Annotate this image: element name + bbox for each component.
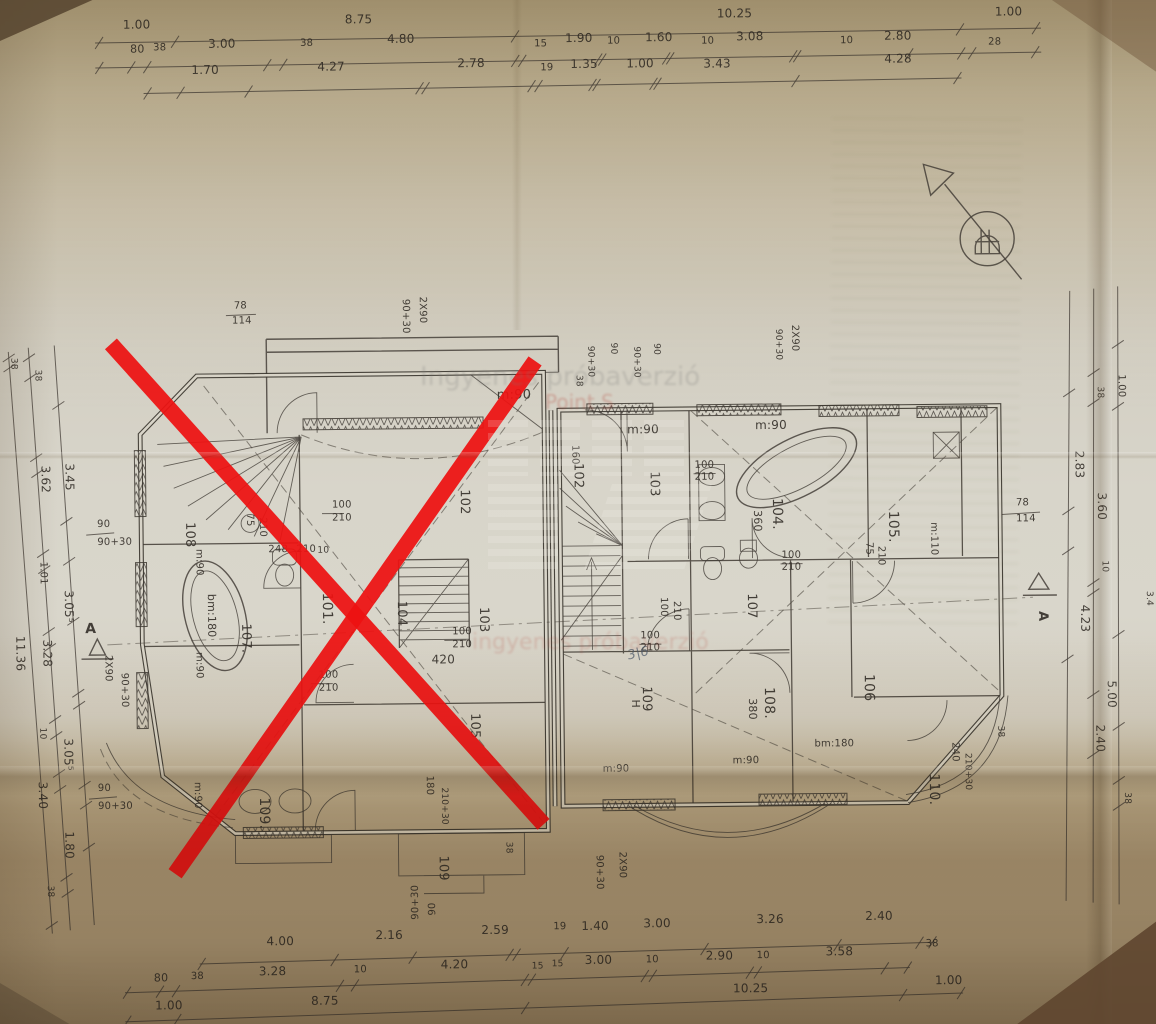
plan-left-label: 210 xyxy=(452,639,472,650)
dim-bottom-label: 3.28 xyxy=(259,964,287,978)
dim-right-label: 38 xyxy=(1122,792,1132,804)
plan-left-label: 90+30 xyxy=(400,299,411,334)
plan-left-label: 100 xyxy=(452,626,472,637)
dim-right-label: 5.00 xyxy=(1105,680,1119,708)
dim-left-label: 1.80 xyxy=(62,831,76,859)
plan-left-label: 103 xyxy=(476,607,491,633)
dim-bottom-label: 80 xyxy=(154,971,169,984)
plan-right-label: 90+30 xyxy=(585,346,595,378)
dim-top-label: 15 xyxy=(534,38,547,49)
plan-right-label: m:90 xyxy=(733,755,760,766)
dim-left-label: 3.62 xyxy=(38,466,52,494)
plan-right-label: 210 xyxy=(671,601,682,621)
dim-bottom-label: 90 xyxy=(427,902,438,915)
dim-left-label: 90 xyxy=(98,783,111,794)
dim-left-label: 10 xyxy=(37,728,47,740)
dim-left-label: 3.45 xyxy=(62,463,76,491)
floorplan-drawing: 1.008.7510.251.0080383.00384.80151.90101… xyxy=(0,0,1156,1024)
plan-right-label: H xyxy=(629,699,642,708)
dim-top-label: 1.90 xyxy=(565,31,593,45)
plan-right-label: 100 xyxy=(640,630,660,641)
plan-right-label: 106 xyxy=(861,674,877,701)
dim-left-label: 90+30 xyxy=(119,673,130,708)
dim-bottom-label: 15 xyxy=(532,961,544,971)
dim-right-label: 3.60 xyxy=(1095,492,1109,520)
dim-left-label: 38 xyxy=(8,358,18,370)
plan-right-label: 100 xyxy=(781,550,801,561)
dim-top-label: 10.25 xyxy=(717,6,753,20)
dim-left-label: 90+30 xyxy=(97,537,132,548)
dim-bottom-label: 4.00 xyxy=(266,934,294,948)
plan-left-label: 75 xyxy=(244,513,255,526)
plan-left-label: 109. xyxy=(256,797,272,829)
plan-left-label: m:90 xyxy=(193,652,204,679)
plan-left-label: 210 xyxy=(332,512,352,523)
dim-top-label: 8.75 xyxy=(345,12,373,26)
dimension-chains xyxy=(0,21,1131,1024)
plan-left-label: m:90 xyxy=(193,549,204,576)
plan-left-label: bm:180 xyxy=(205,594,218,638)
dim-top-label: 1.35 xyxy=(570,57,598,71)
plan-left-label: 78 xyxy=(234,300,247,311)
plan-right-label: 102 xyxy=(570,463,585,489)
dim-right-label: 1.00 xyxy=(1116,374,1127,397)
plan-right-label: 38 xyxy=(574,375,584,387)
plan-right-label: 210 xyxy=(782,562,802,573)
dim-right-label: 2.83 xyxy=(1072,451,1086,479)
dim-bottom-label: 3.58 xyxy=(826,944,854,958)
dim-bottom-label: 2.90 xyxy=(706,948,734,962)
plan-right-label: m:90 xyxy=(755,418,787,432)
north-arrow-icon xyxy=(923,163,1021,280)
plan-right-label: 75 xyxy=(863,542,874,555)
dim-left-label: 38 xyxy=(45,885,55,897)
dim-top-label: 1.70 xyxy=(191,63,219,77)
dim-right-label: 38 xyxy=(1095,386,1105,398)
plan-right-label: 240 xyxy=(949,742,960,762)
dim-right-label: 2.40 xyxy=(1093,724,1107,752)
plan-left-label: 210 xyxy=(319,683,339,694)
dim-bottom-label: 3.00 xyxy=(643,916,671,930)
dim-left-label: 3.05⁵ xyxy=(61,738,75,771)
dim-left-label: 3.40 xyxy=(36,782,50,810)
dim-bottom-label: 10 xyxy=(646,954,659,965)
dim-left-label: 90 xyxy=(97,519,110,530)
plan-left-label: 210+30 xyxy=(439,787,449,825)
section-marker-label: A xyxy=(1035,611,1050,621)
dim-right-label: 78 xyxy=(1016,497,1029,508)
dim-top-label: 4.80 xyxy=(387,32,415,46)
dim-top-label: 19 xyxy=(540,62,553,73)
dim-bottom-label: 10 xyxy=(354,964,367,975)
dim-bottom-label: 10.25 xyxy=(733,981,769,995)
dim-bottom-label: 3.00 xyxy=(585,953,613,967)
dim-left-label: 3.05⁵ xyxy=(62,590,76,623)
handwritten-note-label: 3|6 xyxy=(626,644,650,663)
plan-right-label: 90+30 xyxy=(631,346,641,378)
dim-bottom-label: 2.59 xyxy=(481,923,509,937)
plan-right-label: 380 xyxy=(746,698,759,720)
plan-right-label: 38 xyxy=(995,726,1005,738)
dim-top-label: 10 xyxy=(607,36,620,47)
dim-top-label: 38 xyxy=(153,42,166,53)
plan-right-label: bm:180 xyxy=(814,738,854,749)
plan-left-label: 2X90 xyxy=(617,851,628,878)
plan-left-label: 180 xyxy=(424,776,435,796)
plan-right-label: 100 xyxy=(694,460,714,471)
plan-right-label: 2X90 xyxy=(789,325,800,352)
plan-left-label: 100 xyxy=(332,499,352,510)
dim-bottom-label: 1.00 xyxy=(935,973,963,987)
dim-right-label: 114 xyxy=(1016,513,1036,524)
plan-right-label: m:90 xyxy=(603,763,630,774)
dim-right-label: 3.4 xyxy=(1144,591,1154,606)
plan-left-label: 109 xyxy=(436,855,451,881)
plan-right-label: m:90 xyxy=(627,422,659,436)
dim-top-label: 1.00 xyxy=(995,4,1023,18)
dim-left-label: 1.01 xyxy=(37,562,48,585)
plan-right-label: 210 xyxy=(875,546,886,566)
plan-right-label: 210+30 xyxy=(963,753,973,791)
plan-right-label: 105. xyxy=(885,511,901,543)
dim-top-label: 3.00 xyxy=(208,37,236,51)
plan-left-label: 108 xyxy=(182,522,197,548)
dim-top-label: 10 xyxy=(701,36,714,47)
dim-bottom-label: 8.75 xyxy=(311,994,339,1008)
dim-bottom-label: 2.40 xyxy=(865,909,893,923)
dim-left-label: 2X90 xyxy=(102,655,113,682)
dim-top-label: 80 xyxy=(130,43,145,56)
plan-right-label: 108. xyxy=(761,687,777,719)
dim-top-label: 4.28 xyxy=(884,51,912,65)
plan-right-label: 90+30 xyxy=(773,329,783,361)
dim-bottom-label: 2.16 xyxy=(375,928,403,942)
plan-left-label: m:90 xyxy=(192,782,203,809)
dim-bottom-label: 15 xyxy=(552,959,564,969)
plan-left-label: 102 xyxy=(457,489,472,515)
section-marker-label: A xyxy=(85,621,96,637)
dim-bottom-label: 4.20 xyxy=(441,957,469,971)
dim-top-label: 1.00 xyxy=(626,56,654,70)
plan-left-label: 420 xyxy=(431,652,455,666)
plan-left-label: 107. xyxy=(238,623,253,653)
plan-right-label: 103 xyxy=(647,471,662,497)
dim-top-label: 3.43 xyxy=(703,56,731,70)
dim-bottom-label: 1.00 xyxy=(155,998,183,1012)
dim-top-label: 1.00 xyxy=(123,17,151,31)
photographed-floorplan: 1.008.7510.251.0080383.00384.80151.90101… xyxy=(0,0,1156,1024)
plan-right-label: 160 xyxy=(569,445,580,465)
dim-bottom-label: 1.40 xyxy=(581,919,609,933)
dim-top-label: 2.80 xyxy=(884,28,912,42)
dim-top-label: 3.08 xyxy=(736,29,764,43)
dim-top-label: 10 xyxy=(840,35,853,46)
dim-bottom-label: 3.26 xyxy=(756,912,784,926)
plan-right-label: 90 xyxy=(608,343,618,355)
plan-right-label: 360 xyxy=(751,510,764,532)
plan-left-label: 114 xyxy=(232,315,252,326)
dim-right-label: 10 xyxy=(1100,560,1110,572)
dim-bottom-label: 38 xyxy=(191,971,204,982)
plan-right-label: 210 xyxy=(695,472,715,483)
dim-bottom-label: 38 xyxy=(925,938,938,949)
dim-left-label: 90+30 xyxy=(98,801,133,812)
plan-right-label: 104. xyxy=(769,498,785,530)
dim-bottom-label: 90+30 xyxy=(410,885,421,920)
dim-left-label: 11.36 xyxy=(13,636,27,672)
dim-left-label: 38 xyxy=(32,370,42,382)
plan-left-label: 2X90 xyxy=(417,297,428,324)
plan-right-label: 107 xyxy=(744,593,759,619)
dim-top-label: 38 xyxy=(300,38,313,49)
plan-left-label: 10 xyxy=(317,546,329,556)
dim-top-label: 1.60 xyxy=(645,30,673,44)
plan-right-label: 110. xyxy=(926,773,942,805)
dim-top-label: 2.78 xyxy=(457,56,485,70)
plan-left-label: 90+30 xyxy=(594,855,605,890)
dim-right-label: 4.23 xyxy=(1078,605,1092,633)
dim-left-label: 3.28 xyxy=(40,639,54,667)
dim-bottom-label: 19 xyxy=(553,921,566,932)
plan-left-label: 38 xyxy=(503,842,513,854)
plan-left-label: 104 xyxy=(394,601,409,627)
bathroom-fixtures xyxy=(170,411,872,814)
plan-right-label: 100 xyxy=(658,597,669,617)
dim-top-label: 4.27 xyxy=(317,59,345,73)
dim-top-label: 28 xyxy=(988,37,1001,48)
dim-bottom-label: 10 xyxy=(757,950,770,961)
plan-right-label: 90 xyxy=(651,343,661,355)
plan-right-label: m:110 xyxy=(928,522,939,555)
